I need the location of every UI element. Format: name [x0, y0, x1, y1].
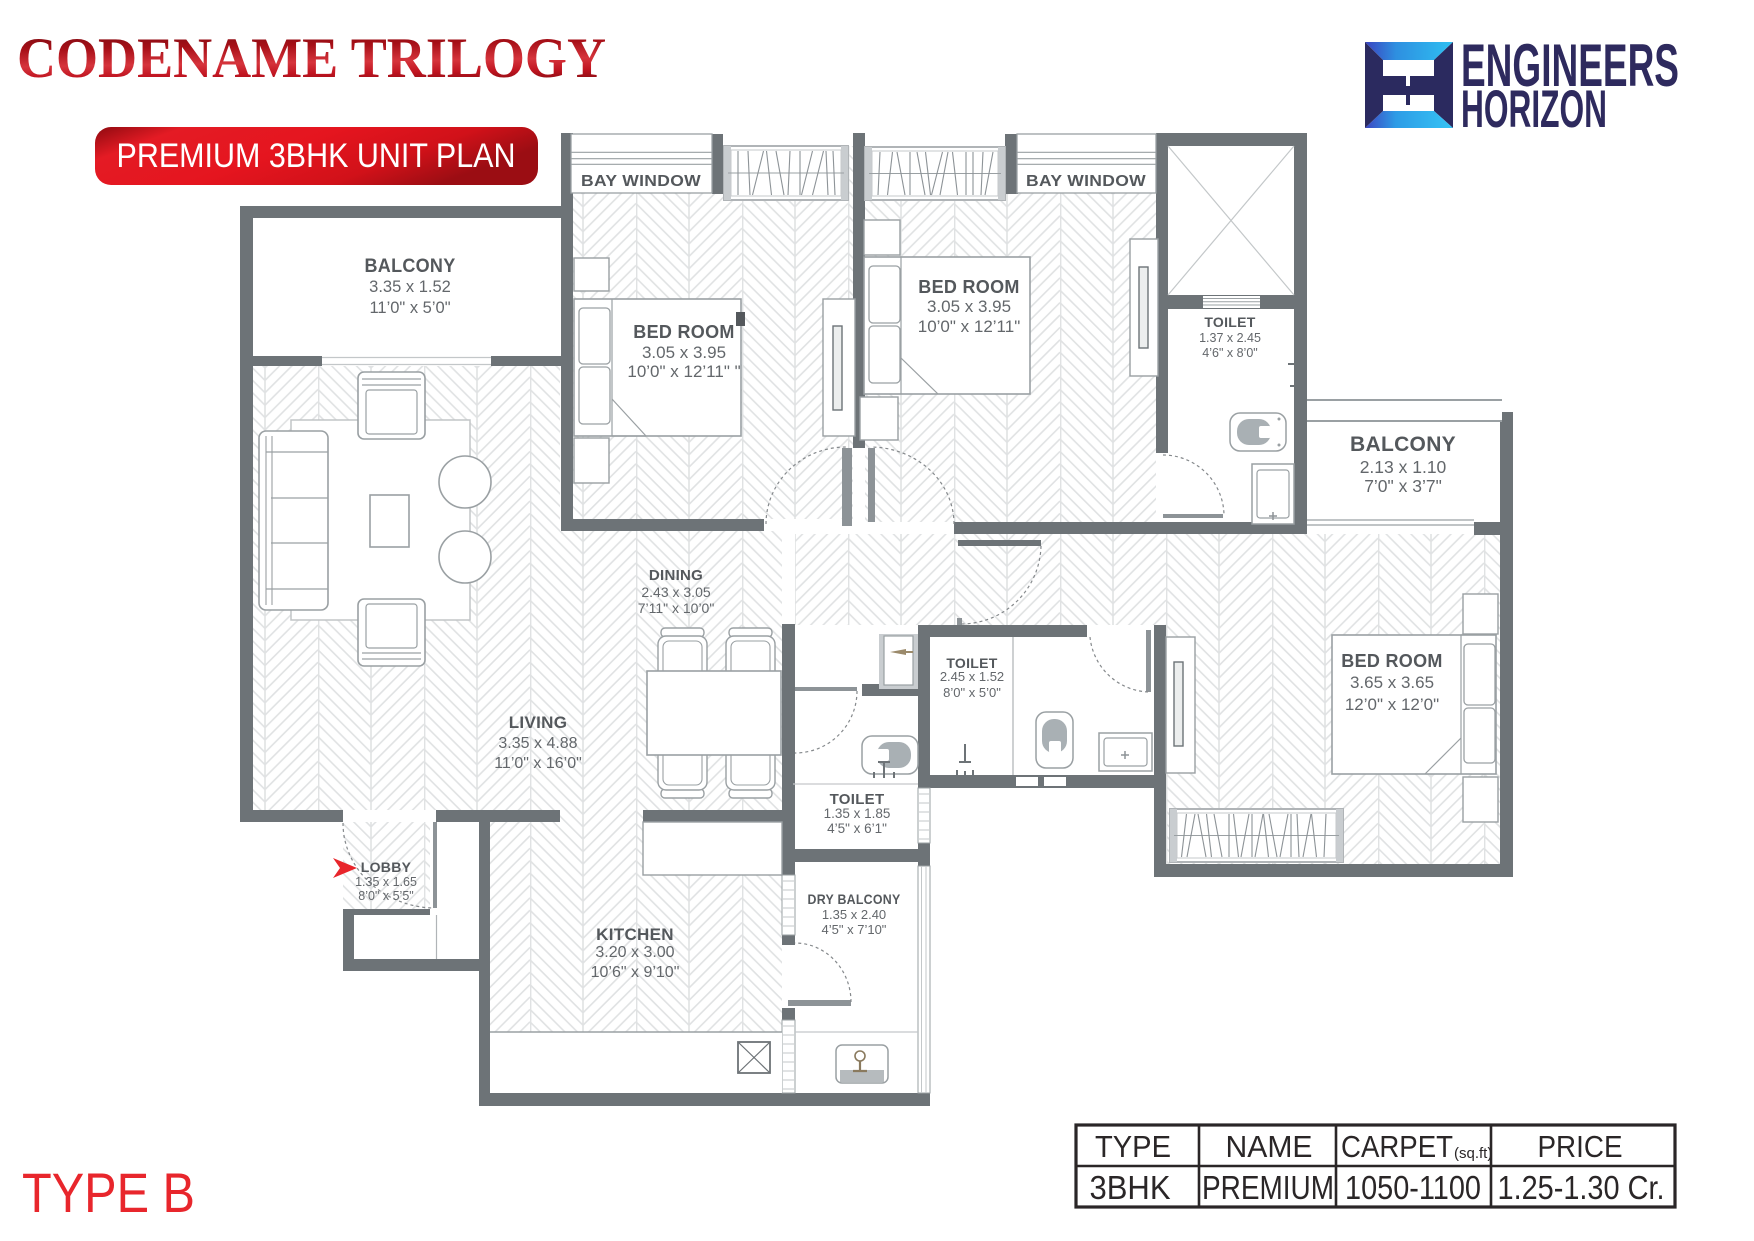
svg-text:3.35 x 4.88: 3.35 x 4.88	[498, 735, 577, 752]
svg-text:HORIZON: HORIZON	[1461, 80, 1607, 139]
svg-text:4’5" x 7’10": 4’5" x 7’10"	[822, 922, 887, 937]
svg-text:3.35 x 1.52: 3.35 x 1.52	[369, 278, 451, 296]
svg-text:12’0" x 12’0": 12’0" x 12’0"	[1345, 695, 1439, 714]
svg-text:2.13 x 1.10: 2.13 x 1.10	[1360, 457, 1447, 477]
svg-text:BALCONY: BALCONY	[1350, 433, 1456, 456]
svg-text:LOBBY: LOBBY	[361, 859, 412, 875]
svg-text:3.65 x 3.65: 3.65 x 3.65	[1350, 673, 1434, 692]
svg-text:BAY WINDOW: BAY WINDOW	[581, 173, 702, 190]
svg-text:KITCHEN: KITCHEN	[596, 925, 674, 944]
svg-text:1.25-1.30 Cr.: 1.25-1.30 Cr.	[1498, 1170, 1665, 1207]
svg-text:DINING: DINING	[649, 567, 703, 584]
svg-text:CODENAME TRILOGY: CODENAME TRILOGY	[17, 27, 606, 90]
svg-text:8’0" x 5’5": 8’0" x 5’5"	[358, 889, 413, 903]
svg-text:CARPET: CARPET	[1341, 1129, 1453, 1164]
svg-text:BAY WINDOW: BAY WINDOW	[1026, 173, 1147, 190]
svg-text:8’0" x 5’0": 8’0" x 5’0"	[943, 685, 1001, 700]
svg-text:11’0" x 16’0": 11’0" x 16’0"	[494, 755, 582, 772]
svg-text:BED ROOM: BED ROOM	[918, 277, 1019, 297]
svg-text:BALCONY: BALCONY	[365, 256, 456, 277]
svg-text:11’0" x 5’0": 11’0" x 5’0"	[369, 299, 450, 317]
svg-text:PREMIUM 3BHK UNIT PLAN: PREMIUM 3BHK UNIT PLAN	[117, 137, 516, 175]
svg-text:BED ROOM: BED ROOM	[1341, 651, 1442, 671]
svg-text:1050-1100: 1050-1100	[1345, 1170, 1481, 1207]
svg-text:7’0" x 3’7": 7’0" x 3’7"	[1364, 476, 1442, 496]
svg-text:10’0" x 12’11": 10’0" x 12’11"	[918, 317, 1021, 336]
svg-text:3.20 x 3.00: 3.20 x 3.00	[595, 944, 674, 961]
svg-text:(sq.ft): (sq.ft)	[1454, 1145, 1492, 1162]
svg-text:2.43 x 3.05: 2.43 x 3.05	[641, 584, 710, 600]
svg-text:NAME: NAME	[1226, 1129, 1313, 1164]
svg-text:3.05 x 3.95: 3.05 x 3.95	[642, 343, 726, 362]
svg-text:DRY BALCONY: DRY BALCONY	[808, 891, 901, 907]
svg-text:10’0" x 12’11" ": 10’0" x 12’11" "	[627, 362, 740, 381]
svg-text:BED ROOM: BED ROOM	[633, 322, 734, 342]
svg-text:PREMIUM: PREMIUM	[1202, 1170, 1334, 1207]
svg-text:1.35 x 2.40: 1.35 x 2.40	[822, 907, 886, 922]
svg-text:7’11" x 10’0": 7’11" x 10’0"	[638, 600, 715, 616]
svg-text:PRICE: PRICE	[1538, 1129, 1623, 1164]
svg-text:LIVING: LIVING	[509, 713, 567, 732]
svg-text:4’5" x 6’1": 4’5" x 6’1"	[827, 821, 887, 836]
svg-text:TYPE: TYPE	[1095, 1129, 1171, 1164]
svg-text:TYPE B: TYPE B	[22, 1161, 195, 1224]
svg-text:4’6" x 8’0": 4’6" x 8’0"	[1202, 346, 1257, 360]
svg-text:3.05 x 3.95: 3.05 x 3.95	[927, 297, 1011, 316]
svg-text:2.45 x 1.52: 2.45 x 1.52	[940, 669, 1004, 684]
svg-text:1.35 x 1.65: 1.35 x 1.65	[355, 875, 417, 889]
svg-text:10’6" x 9’10": 10’6" x 9’10"	[591, 964, 680, 981]
svg-text:TOILET: TOILET	[1204, 314, 1255, 330]
svg-text:3BHK: 3BHK	[1090, 1170, 1171, 1207]
svg-text:1.37 x 2.45: 1.37 x 2.45	[1199, 331, 1261, 345]
svg-text:1.35 x 1.85: 1.35 x 1.85	[824, 806, 891, 821]
